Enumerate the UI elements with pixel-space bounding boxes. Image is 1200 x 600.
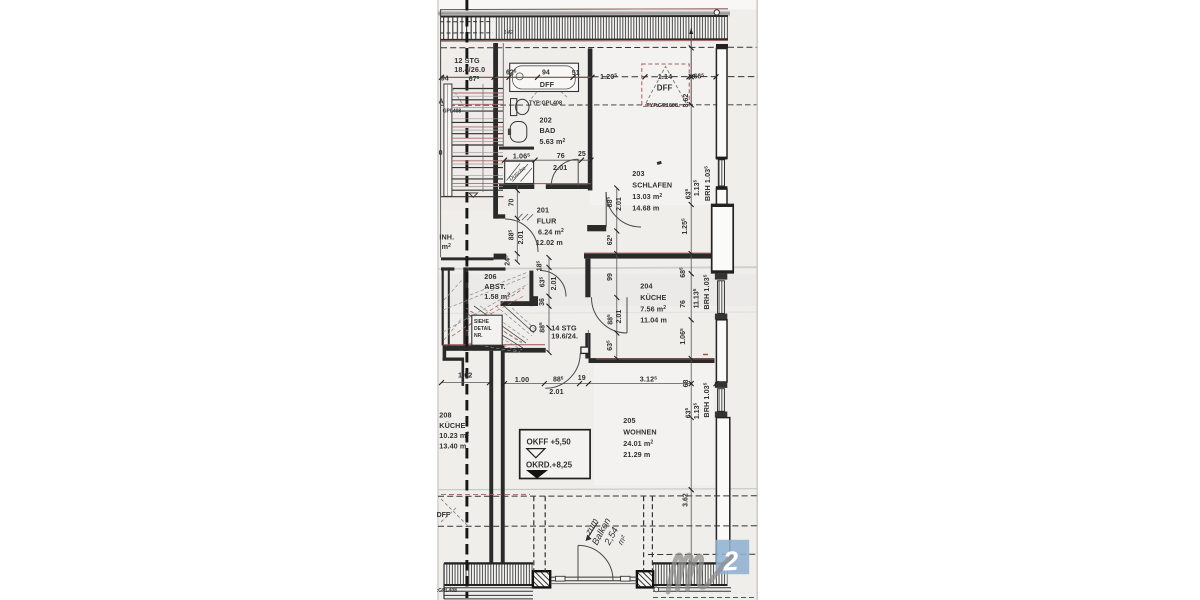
svg-text:5.63 m2: 5.63 m2 — [540, 137, 566, 146]
svg-text:51: 51 — [572, 70, 580, 77]
svg-text:6.24 m2: 6.24 m2 — [538, 228, 564, 237]
svg-text:TYP.GP1608: TYP.GP1608 — [646, 103, 678, 109]
svg-text:2.01: 2.01 — [616, 310, 623, 324]
svg-text:KÜCHE: KÜCHE — [640, 293, 666, 302]
svg-text:ABST.: ABST. — [484, 282, 505, 291]
svg-text:NR.: NR. — [474, 333, 483, 339]
svg-text:10.23 m2: 10.23 m2 — [439, 431, 469, 440]
svg-text:25: 25 — [578, 151, 586, 158]
svg-text:0: 0 — [439, 150, 443, 157]
svg-text:DFF: DFF — [437, 512, 451, 519]
svg-text:WOHNEN: WOHNEN — [623, 428, 656, 437]
svg-text:TYP:GPL408: TYP:GPL408 — [529, 100, 562, 106]
svg-text:GPL408: GPL408 — [443, 109, 462, 115]
svg-text:202: 202 — [540, 116, 552, 125]
svg-text:18.4/26.0: 18.4/26.0 — [454, 65, 485, 74]
svg-text:36: 36 — [539, 298, 546, 306]
svg-text:21.29 m: 21.29 m — [623, 450, 650, 459]
svg-text:2.01: 2.01 — [551, 277, 558, 291]
svg-text:12 STG: 12 STG — [454, 56, 480, 65]
svg-text:1.14: 1.14 — [658, 72, 672, 81]
svg-text:BAD: BAD — [540, 126, 556, 135]
svg-text:OKRD.+8,25: OKRD.+8,25 — [526, 460, 573, 469]
svg-text:2.01: 2.01 — [616, 197, 623, 211]
svg-text::GPL408: :GPL408 — [437, 588, 458, 594]
svg-text:142: 142 — [504, 30, 514, 36]
svg-text:68: 68 — [683, 380, 690, 388]
svg-text:76: 76 — [557, 153, 565, 160]
svg-text:201: 201 — [537, 205, 549, 214]
svg-text:2.01: 2.01 — [518, 231, 525, 245]
svg-text:1.58 m2: 1.58 m2 — [484, 292, 510, 301]
svg-text:76: 76 — [680, 300, 687, 308]
svg-text:FLUR: FLUR — [537, 216, 557, 225]
svg-text:70: 70 — [509, 199, 516, 207]
svg-text:7.56 m2: 7.56 m2 — [640, 305, 666, 314]
svg-text:2: 2 — [721, 546, 739, 577]
svg-text:3.62: 3.62 — [683, 94, 690, 108]
svg-text:205: 205 — [623, 416, 635, 425]
svg-text:24.01 m2: 24.01 m2 — [623, 439, 653, 448]
svg-text:208: 208 — [439, 410, 451, 419]
svg-text:DFF: DFF — [540, 80, 555, 89]
svg-text:OKFF +5,50: OKFF +5,50 — [527, 437, 572, 446]
svg-text:SIEHE: SIEHE — [474, 319, 490, 325]
svg-text:DFF: DFF — [657, 84, 673, 93]
svg-text:INH.: INH. — [439, 233, 454, 242]
svg-text:DETAIL: DETAIL — [474, 326, 492, 332]
svg-text:203: 203 — [632, 169, 644, 178]
svg-text:3.62: 3.62 — [682, 493, 689, 507]
svg-text:19.6/24.: 19.6/24. — [551, 332, 578, 341]
svg-text:11.135: 11.135 — [692, 288, 700, 308]
svg-text:11.04 m: 11.04 m — [640, 316, 667, 325]
svg-text:1.00: 1.00 — [515, 375, 529, 384]
svg-text:19: 19 — [578, 375, 586, 382]
svg-text:99: 99 — [607, 273, 614, 281]
svg-text:13.03 m2: 13.03 m2 — [632, 192, 662, 201]
svg-text:94: 94 — [441, 76, 449, 83]
svg-text:13.40 m: 13.40 m — [439, 442, 466, 451]
svg-text:2.01: 2.01 — [549, 387, 563, 396]
svg-text:A: A — [439, 98, 444, 105]
svg-text:206: 206 — [484, 272, 496, 281]
svg-text:SCHLAFEN: SCHLAFEN — [632, 181, 672, 190]
svg-text:BRH 1.035: BRH 1.035 — [702, 274, 711, 309]
svg-text:204: 204 — [640, 282, 652, 291]
svg-text:2.01: 2.01 — [553, 163, 567, 172]
svg-text:94: 94 — [542, 69, 550, 76]
svg-text:BRH 1.035: BRH 1.035 — [702, 382, 711, 417]
svg-text:KÜCHE: KÜCHE — [439, 421, 465, 430]
svg-text:BRH 1.035: BRH 1.035 — [703, 166, 712, 201]
svg-text:1.02: 1.02 — [458, 371, 472, 380]
svg-text:12.02 m: 12.02 m — [536, 238, 563, 247]
svg-text:14.68 m: 14.68 m — [632, 203, 659, 212]
